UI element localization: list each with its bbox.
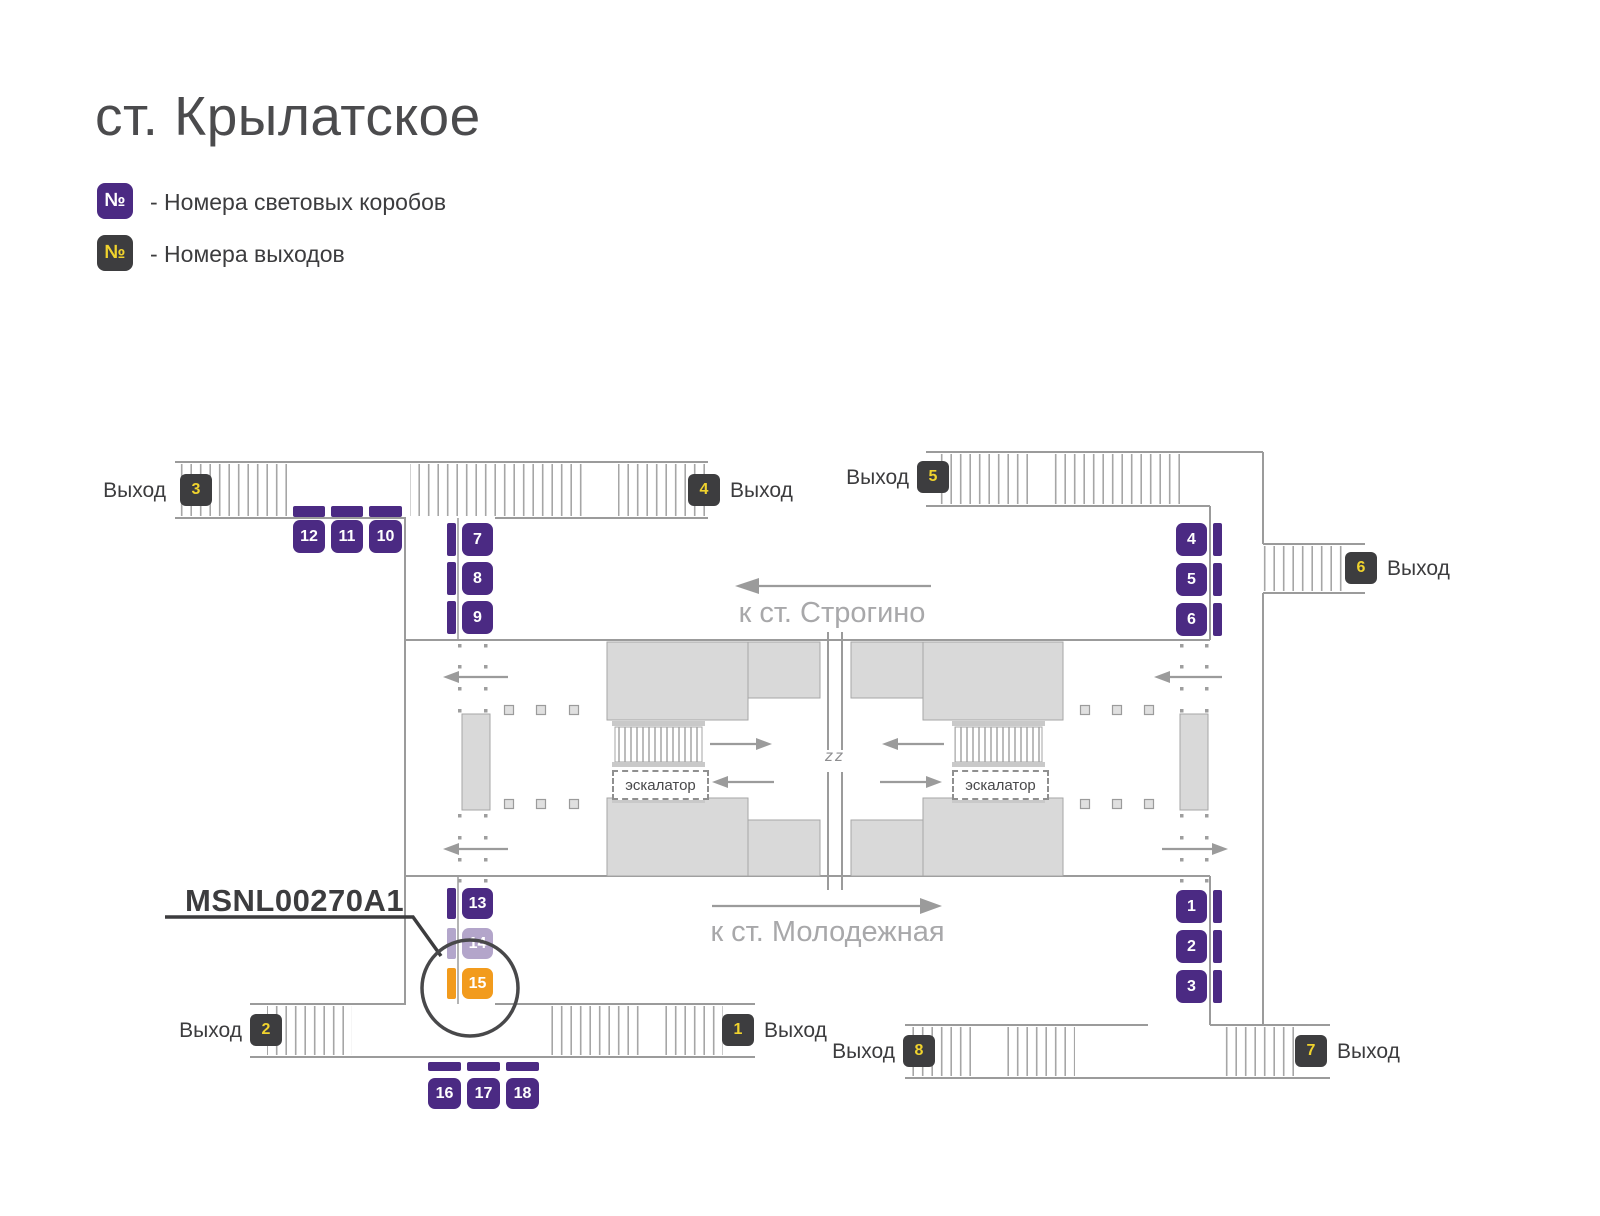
- light-box-bar-17: [467, 1062, 500, 1071]
- light-box-bar-13: [447, 888, 456, 919]
- light-box-1[interactable]: 1: [1176, 890, 1207, 923]
- light-box-bar-9: [447, 601, 456, 634]
- exit-label-5: Выход: [797, 466, 909, 490]
- light-box-15[interactable]: 15: [462, 968, 493, 999]
- exit-badge-1[interactable]: 1: [722, 1014, 754, 1046]
- arrow-right-bottom-icon: [1212, 843, 1228, 855]
- light-box-7[interactable]: 7: [462, 523, 493, 556]
- light-box-bar-14: [447, 928, 456, 959]
- light-box-17[interactable]: 17: [467, 1078, 500, 1109]
- exit-label-2: Выход: [130, 1019, 242, 1043]
- light-box-3[interactable]: 3: [1176, 970, 1207, 1003]
- light-box-bar-18: [506, 1062, 539, 1071]
- light-box-14[interactable]: 14: [462, 928, 493, 959]
- escalator-left-label: эскалатор: [612, 770, 709, 800]
- light-box-bar-15: [447, 968, 456, 999]
- light-box-11[interactable]: 11: [331, 520, 363, 553]
- arrow-left-top-icon: [443, 671, 459, 683]
- escalator-right-label: эскалатор: [952, 770, 1049, 800]
- light-box-9[interactable]: 9: [462, 601, 493, 634]
- light-box-bar-5: [1213, 563, 1222, 596]
- light-box-12[interactable]: 12: [293, 520, 325, 553]
- exit-badge-3[interactable]: 3: [180, 474, 212, 506]
- arrow-right-top-icon: [1154, 671, 1170, 683]
- light-box-4[interactable]: 4: [1176, 523, 1207, 556]
- exit-badge-8[interactable]: 8: [903, 1035, 935, 1067]
- callout-code: MSNL00270A1: [185, 883, 404, 919]
- escalator-right-down-arrow-icon: [926, 776, 942, 788]
- exit-badge-4[interactable]: 4: [688, 474, 720, 506]
- escalator-right-up-arrow-icon: [882, 738, 898, 750]
- light-box-bar-7: [447, 523, 456, 556]
- center-mark: zz: [816, 748, 854, 766]
- light-box-bar-16: [428, 1062, 461, 1071]
- arrow-to-molodezhnaya-icon: [920, 898, 942, 914]
- exit-badge-2[interactable]: 2: [250, 1014, 282, 1046]
- light-box-bar-8: [447, 562, 456, 595]
- light-box-13[interactable]: 13: [462, 888, 493, 919]
- light-box-8[interactable]: 8: [462, 562, 493, 595]
- direction-molodezhnaya-label: к ст. Молодежная: [700, 916, 955, 949]
- light-box-6[interactable]: 6: [1176, 603, 1207, 636]
- light-box-18[interactable]: 18: [506, 1078, 539, 1109]
- light-box-bar-6: [1213, 603, 1222, 636]
- light-box-bar-12: [293, 506, 325, 517]
- light-box-bar-10: [369, 506, 402, 517]
- exit-label-6: Выход: [1387, 557, 1507, 581]
- light-box-5[interactable]: 5: [1176, 563, 1207, 596]
- exit-label-7: Выход: [1337, 1040, 1457, 1064]
- light-box-bar-1: [1213, 890, 1222, 923]
- light-box-bar-11: [331, 506, 363, 517]
- exit-label-8: Выход: [783, 1040, 895, 1064]
- light-box-bar-3: [1213, 970, 1222, 1003]
- station-scheme-page: ст. Крылатское № - Номера световых короб…: [0, 0, 1600, 1216]
- exit-badge-5[interactable]: 5: [917, 461, 949, 493]
- arrow-left-bottom-icon: [443, 843, 459, 855]
- escalator-left-up-arrow-icon: [756, 738, 772, 750]
- arrow-to-strogino-icon: [735, 578, 759, 594]
- light-box-bar-2: [1213, 930, 1222, 963]
- light-box-bar-4: [1213, 523, 1222, 556]
- escalator-left-down-arrow-icon: [712, 776, 728, 788]
- direction-strogino-label: к ст. Строгино: [712, 597, 952, 630]
- light-box-10[interactable]: 10: [369, 520, 402, 553]
- exit-badge-6[interactable]: 6: [1345, 552, 1377, 584]
- light-box-16[interactable]: 16: [428, 1078, 461, 1109]
- exit-badge-7[interactable]: 7: [1295, 1035, 1327, 1067]
- light-box-2[interactable]: 2: [1176, 930, 1207, 963]
- exit-label-3: Выход: [52, 479, 166, 503]
